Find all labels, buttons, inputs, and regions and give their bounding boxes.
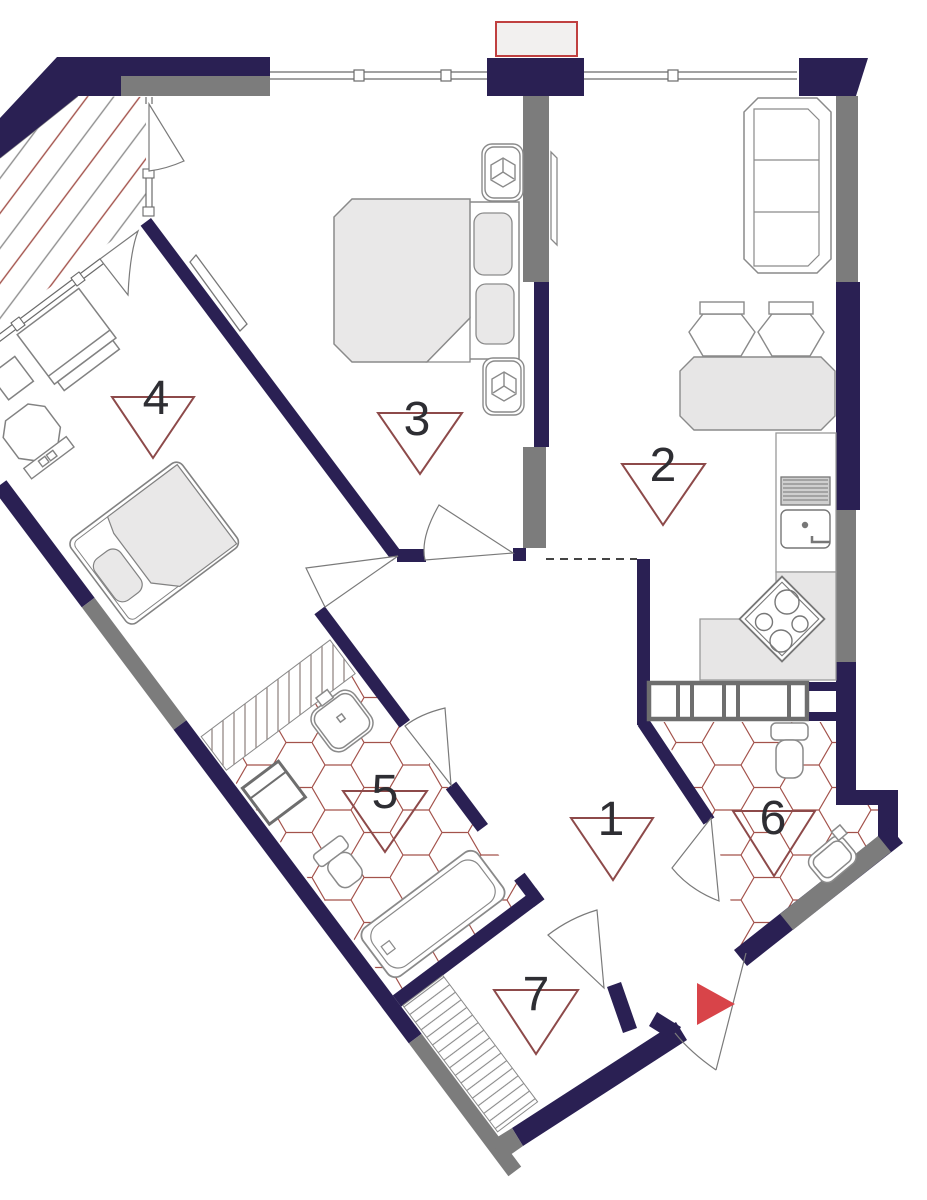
svg-text:5: 5 — [372, 766, 399, 819]
svg-text:3: 3 — [404, 393, 431, 446]
svg-text:4: 4 — [143, 372, 170, 425]
svg-text:7: 7 — [523, 968, 550, 1021]
svg-text:1: 1 — [598, 793, 625, 846]
svg-text:2: 2 — [650, 439, 677, 492]
svg-text:6: 6 — [760, 792, 787, 845]
